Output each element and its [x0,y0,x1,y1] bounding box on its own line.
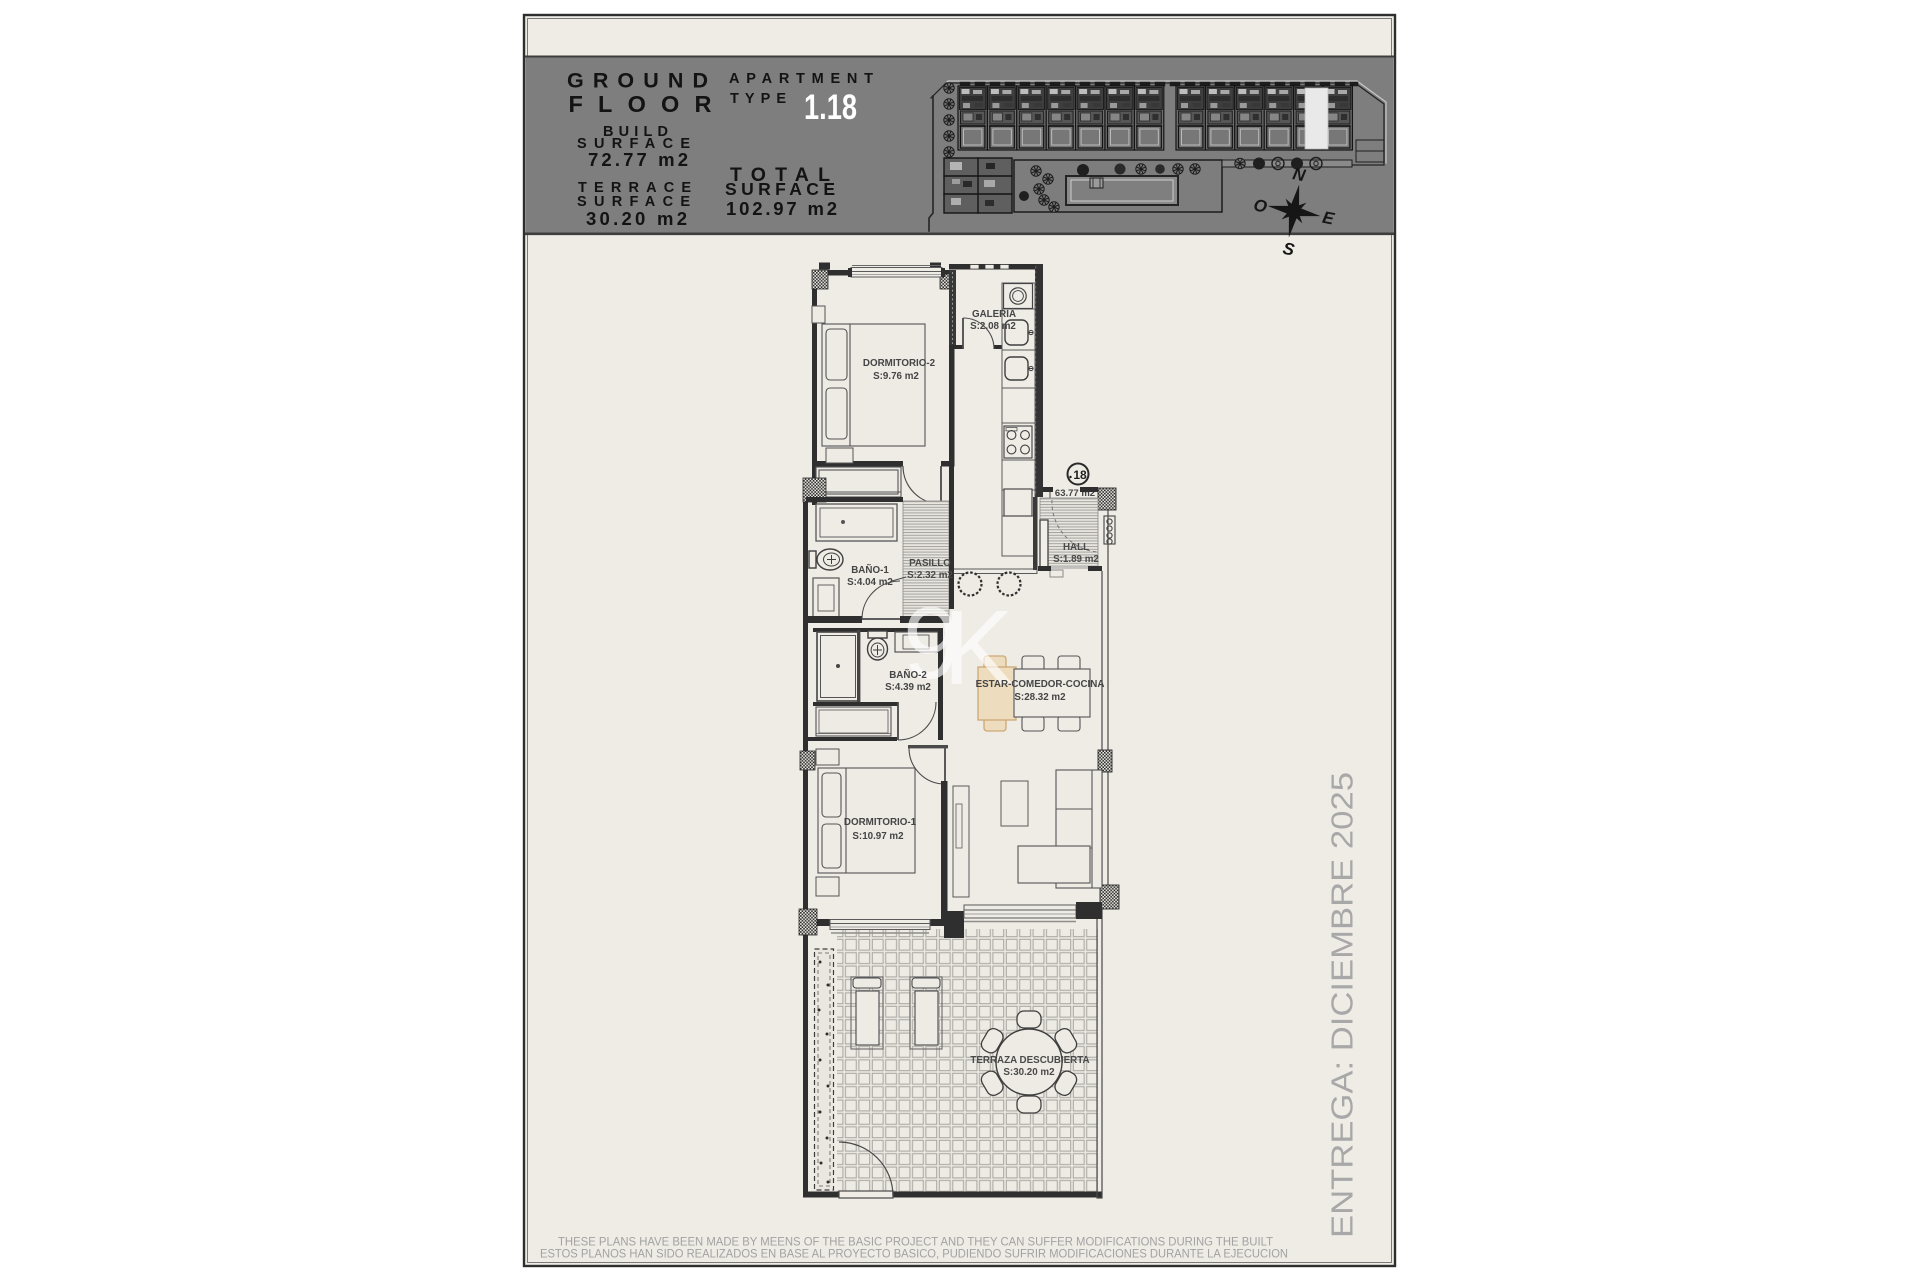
svg-text:HALL: HALL [1063,542,1089,553]
svg-text:S:28.32 m2: S:28.32 m2 [1014,692,1066,703]
svg-text:DORMITORIO-2: DORMITORIO-2 [863,358,936,369]
svg-text:102.97 m2: 102.97 m2 [726,198,837,219]
svg-text:GALERIA: GALERIA [972,309,1016,320]
svg-text:SURFACE: SURFACE [725,179,835,199]
svg-text:ESTAR-COMEDOR-COCINA: ESTAR-COMEDOR-COCINA [976,679,1105,690]
svg-text:S:9.76 m2: S:9.76 m2 [873,371,919,382]
svg-text:S:10.97 m2: S:10.97 m2 [852,831,904,842]
svg-text:ESTOS PLANOS HAN SIDO REALIZAD: ESTOS PLANOS HAN SIDO REALIZADOS EN BASE… [540,1249,1288,1261]
svg-text:S:2.08 m2: S:2.08 m2 [970,321,1016,332]
svg-text:S:30.20 m2: S:30.20 m2 [1003,1067,1055,1078]
svg-text:18: 18 [1073,468,1087,482]
svg-text:S:4.04 m2: S:4.04 m2 [847,577,893,588]
svg-text:BAÑO-1: BAÑO-1 [851,565,889,576]
svg-text:BAÑO-2: BAÑO-2 [889,670,927,681]
svg-text:DORMITORIO-1: DORMITORIO-1 [844,817,917,828]
svg-text:S:4.39 m2: S:4.39 m2 [885,682,931,693]
svg-text:APARTMENT: APARTMENT [729,71,873,87]
svg-text:72.77 m2: 72.77 m2 [588,149,688,170]
svg-text:S:2.32 m2: S:2.32 m2 [907,570,953,581]
svg-text:THESE PLANS HAVE BEEN MADE BY: THESE PLANS HAVE BEEN MADE BY MEENS OF T… [558,1237,1273,1249]
svg-text:ENTREGA: DICIEMBRE 2025: ENTREGA: DICIEMBRE 2025 [1325,772,1360,1238]
svg-text:PASILLO: PASILLO [909,558,951,569]
svg-text:1.18: 1.18 [804,88,857,127]
svg-text:30.20 m2: 30.20 m2 [586,208,687,229]
svg-text:S:1.89 m2: S:1.89 m2 [1053,554,1099,565]
svg-text:TERRAZA DESCUBIERTA: TERRAZA DESCUBIERTA [970,1055,1089,1066]
